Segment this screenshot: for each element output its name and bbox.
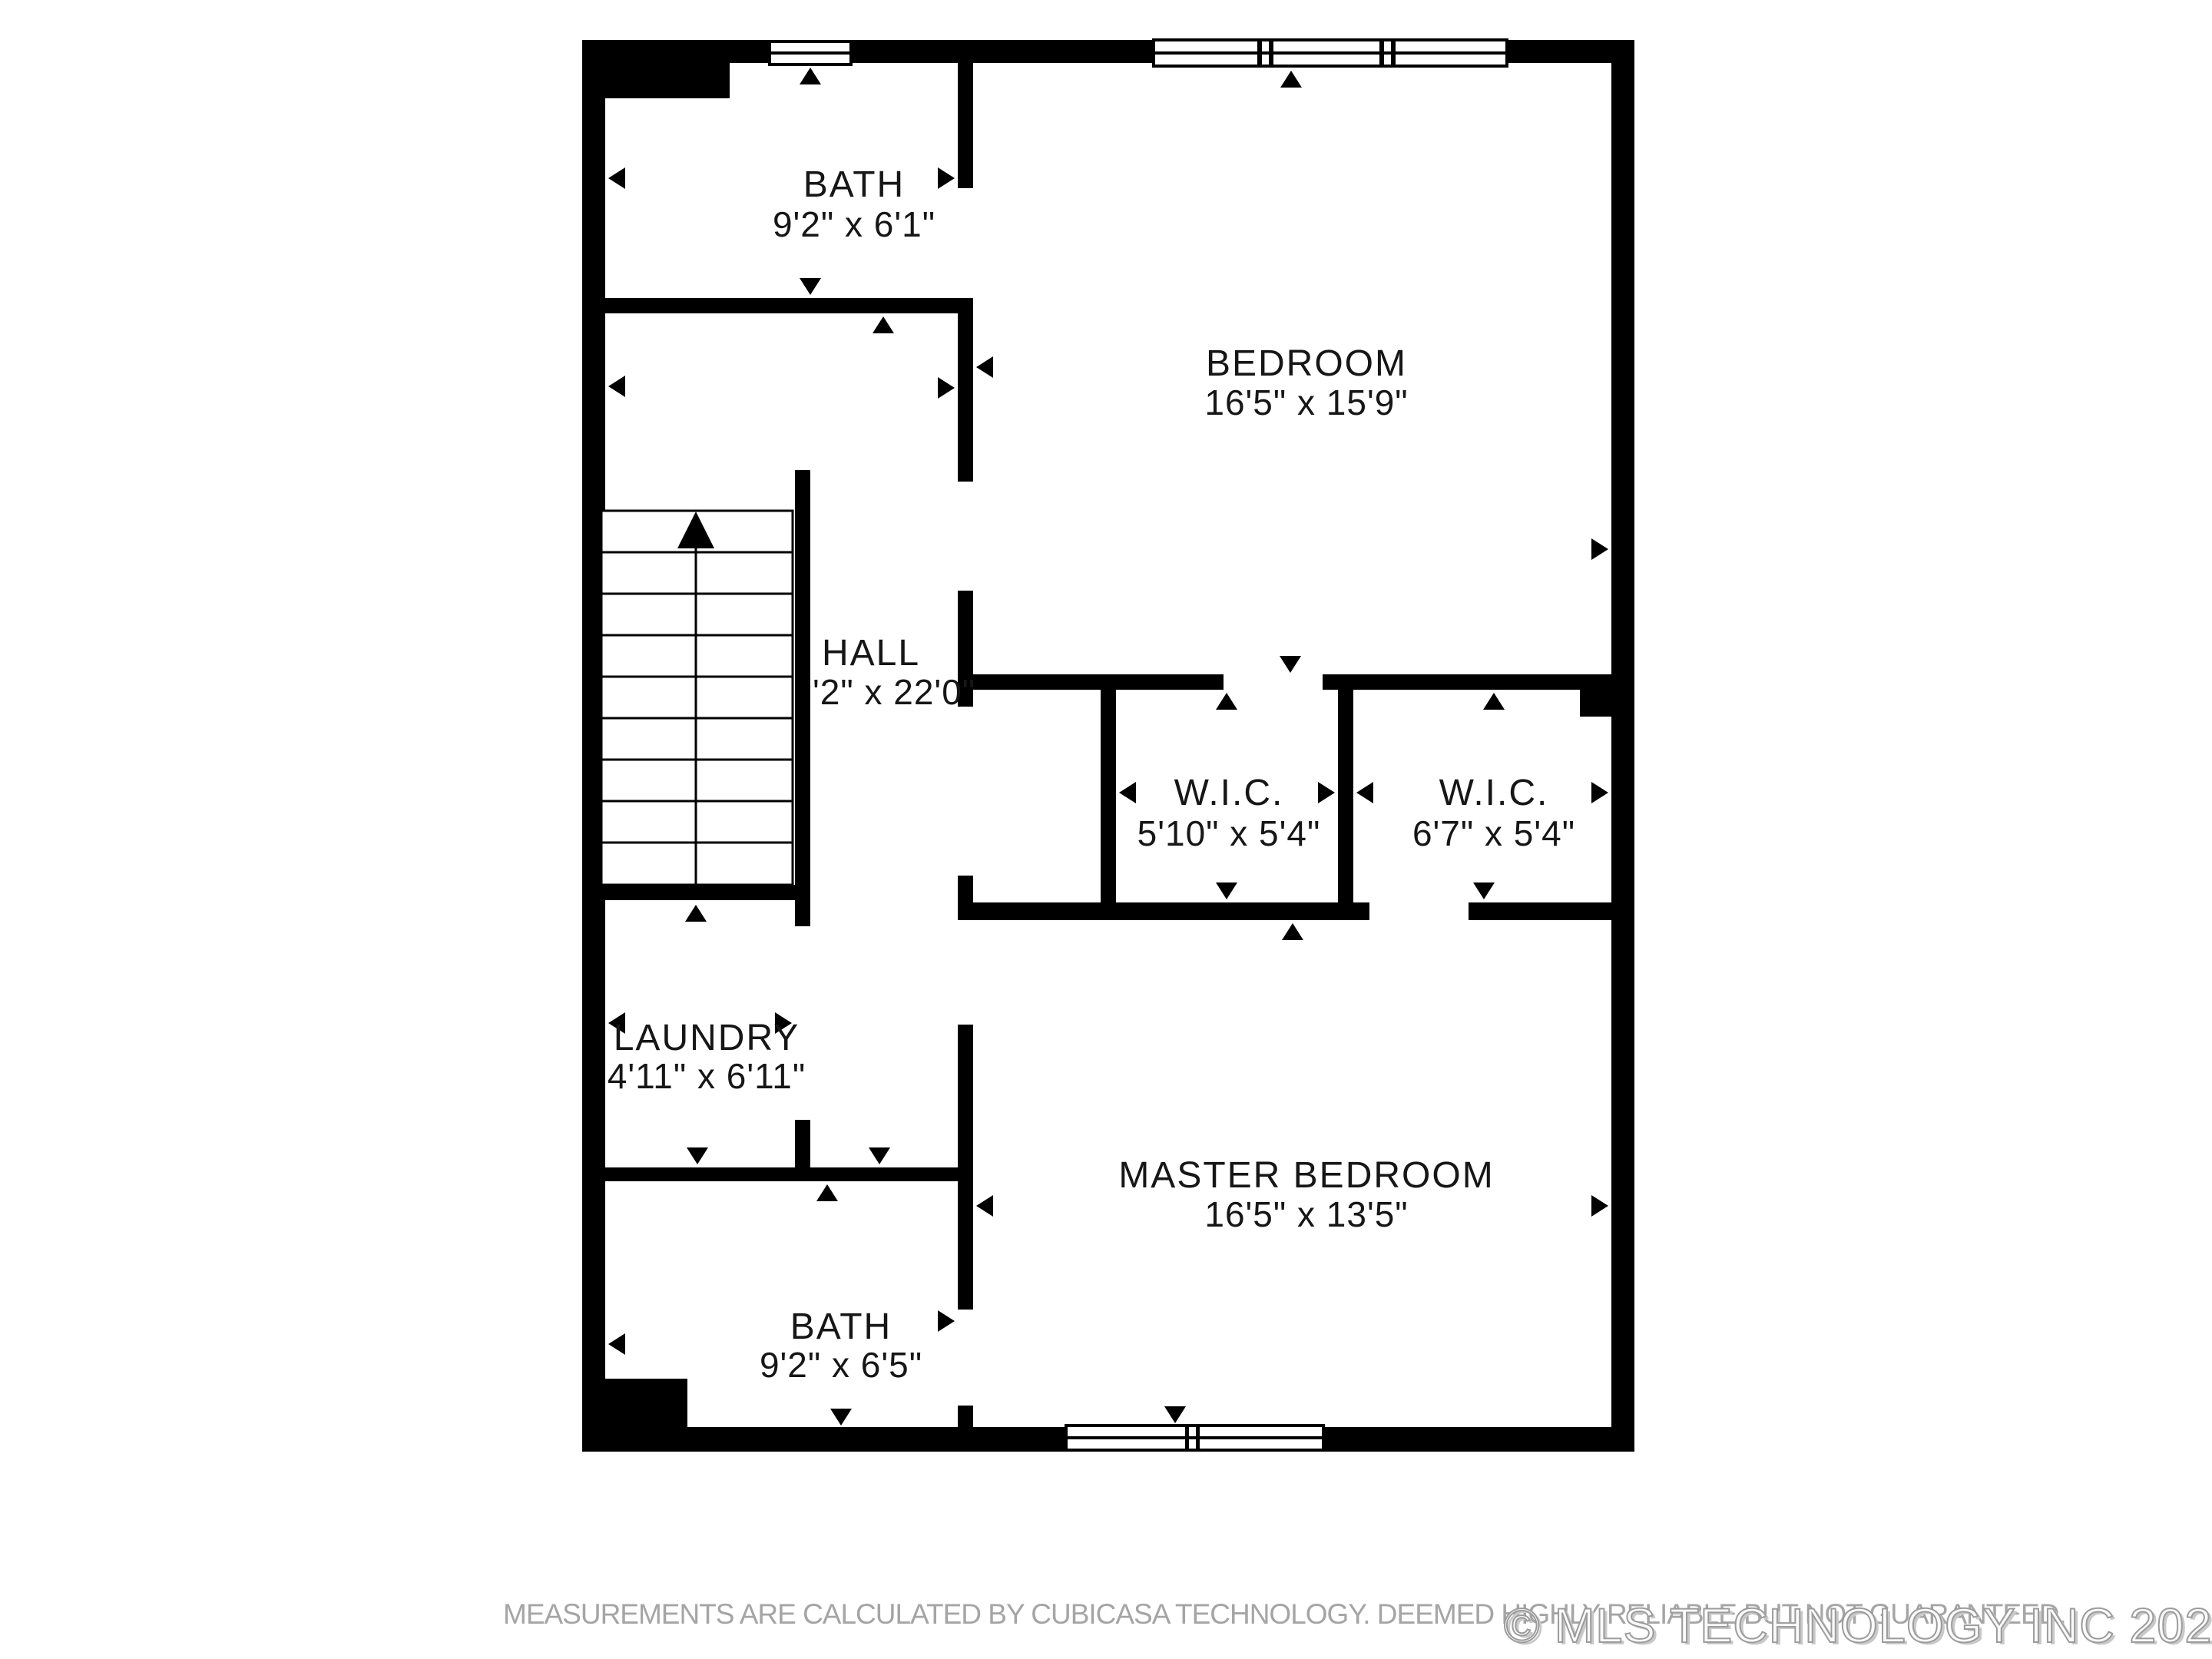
measure-arrow-down-icon xyxy=(869,1147,890,1164)
window-bedroom-divider xyxy=(1269,40,1273,66)
wall-stair-right xyxy=(795,470,810,926)
wall-block-wic-right xyxy=(1580,690,1611,717)
room-label-master: MASTER BEDROOM xyxy=(1118,1155,1494,1196)
room-label-wic-right: W.I.C. xyxy=(1439,773,1549,813)
wall-bedroom-bottom-right xyxy=(1323,674,1611,690)
measure-arrow-up-icon xyxy=(1216,693,1237,710)
measure-arrow-left-icon xyxy=(1356,782,1373,803)
window-bedroom-divider xyxy=(1391,40,1396,66)
measure-arrow-right-icon xyxy=(1591,782,1608,803)
room-dims-bath-lower: 9'2" x 6'5" xyxy=(760,1345,922,1385)
watermark: © MLS TECHNOLOGY INC 2026 xyxy=(1504,1599,2212,1653)
room-dims-bedroom: 16'5" x 15'9" xyxy=(1204,382,1408,422)
measure-arrow-right-icon xyxy=(938,167,955,189)
measure-arrow-right-icon xyxy=(938,1310,955,1332)
measure-arrow-right-icon xyxy=(1318,782,1335,803)
measure-arrow-left-icon xyxy=(608,167,625,189)
measure-arrow-down-icon xyxy=(1280,656,1301,673)
floor-plan: BATH 9'2" x 6'1" BEDROOM 16'5" x 15'9" H… xyxy=(0,0,2212,1659)
wall-laundry-bottom xyxy=(582,1167,973,1181)
wall-bedroom-bottom-left xyxy=(958,674,1224,690)
wall-wic-divider xyxy=(1338,690,1353,902)
measure-arrow-up-icon xyxy=(816,1184,838,1201)
measure-arrow-up-icon xyxy=(685,905,707,922)
window-bedroom-divider xyxy=(1379,40,1384,66)
staircase xyxy=(601,511,793,885)
measure-arrow-up-icon xyxy=(1483,693,1505,710)
measure-arrow-left-icon xyxy=(976,1195,993,1217)
room-label-hall: HALL xyxy=(822,633,920,674)
wall-vestibule-right xyxy=(1101,690,1116,902)
wall-spine-seg5 xyxy=(958,1025,973,1310)
measure-arrow-left-icon xyxy=(976,356,993,378)
measure-arrow-down-icon xyxy=(1216,882,1237,899)
measure-arrow-right-icon xyxy=(1591,1195,1608,1217)
wall-spine-seg2 xyxy=(958,298,973,482)
footer: MEASUREMENTS ARE CALCULATED BY CUBICASA … xyxy=(503,1598,2212,1655)
room-dims-laundry: 4'11" x 6'11" xyxy=(608,1056,806,1096)
floor-plan-page: BATH 9'2" x 6'1" BEDROOM 16'5" x 15'9" H… xyxy=(0,0,2212,1659)
measure-arrow-down-icon xyxy=(830,1409,852,1426)
window-master-divider xyxy=(1185,1426,1189,1450)
wall-block-bottom-left xyxy=(582,1379,687,1427)
measure-arrow-down-icon xyxy=(800,278,821,295)
room-label-bedroom: BEDROOM xyxy=(1206,343,1407,384)
wall-spine-seg1 xyxy=(958,63,973,188)
wall-spine-seg6 xyxy=(958,1406,973,1427)
measure-arrow-up-icon xyxy=(800,68,821,84)
wall-outer-right xyxy=(1611,40,1634,1452)
room-dims-master: 16'5" x 13'5" xyxy=(1204,1194,1408,1234)
room-dims-hall: '2" x 22'0" xyxy=(813,672,975,712)
measure-arrow-left-icon xyxy=(1119,782,1136,803)
window-bedroom-divider xyxy=(1257,40,1262,66)
room-dims-bath-upper: 9'2" x 6'1" xyxy=(773,204,935,244)
measure-arrow-down-icon xyxy=(1473,882,1495,899)
wall-bath-upper-bottom xyxy=(582,298,973,313)
wall-wic-bottom-left xyxy=(958,902,1369,920)
wall-wic-bottom-right xyxy=(1469,902,1611,920)
room-dims-wic-right: 6'7" x 5'4" xyxy=(1412,813,1575,853)
windows xyxy=(770,40,1507,1450)
room-label-bath-upper: BATH xyxy=(803,164,905,205)
measure-arrow-left-icon xyxy=(608,1333,625,1355)
measure-arrow-right-icon xyxy=(938,377,955,399)
measure-arrow-left-icon xyxy=(608,376,625,397)
room-label-bath-lower: BATH xyxy=(790,1306,892,1347)
window-master-divider xyxy=(1196,1426,1200,1450)
measure-arrow-down-icon xyxy=(1164,1406,1186,1423)
measure-arrow-right-icon xyxy=(1591,538,1608,560)
room-label-wic-left: W.I.C. xyxy=(1174,773,1284,813)
room-label-laundry: LAUNDRY xyxy=(614,1018,800,1058)
wall-block-top-left xyxy=(582,63,730,98)
measure-arrow-up-icon xyxy=(1280,71,1302,88)
wall-laundry-top xyxy=(582,885,810,900)
measure-arrow-down-icon xyxy=(687,1147,708,1164)
measure-arrow-up-icon xyxy=(1282,923,1303,940)
measure-arrow-up-icon xyxy=(873,316,894,333)
room-dims-wic-left: 5'10" x 5'4" xyxy=(1137,813,1321,853)
